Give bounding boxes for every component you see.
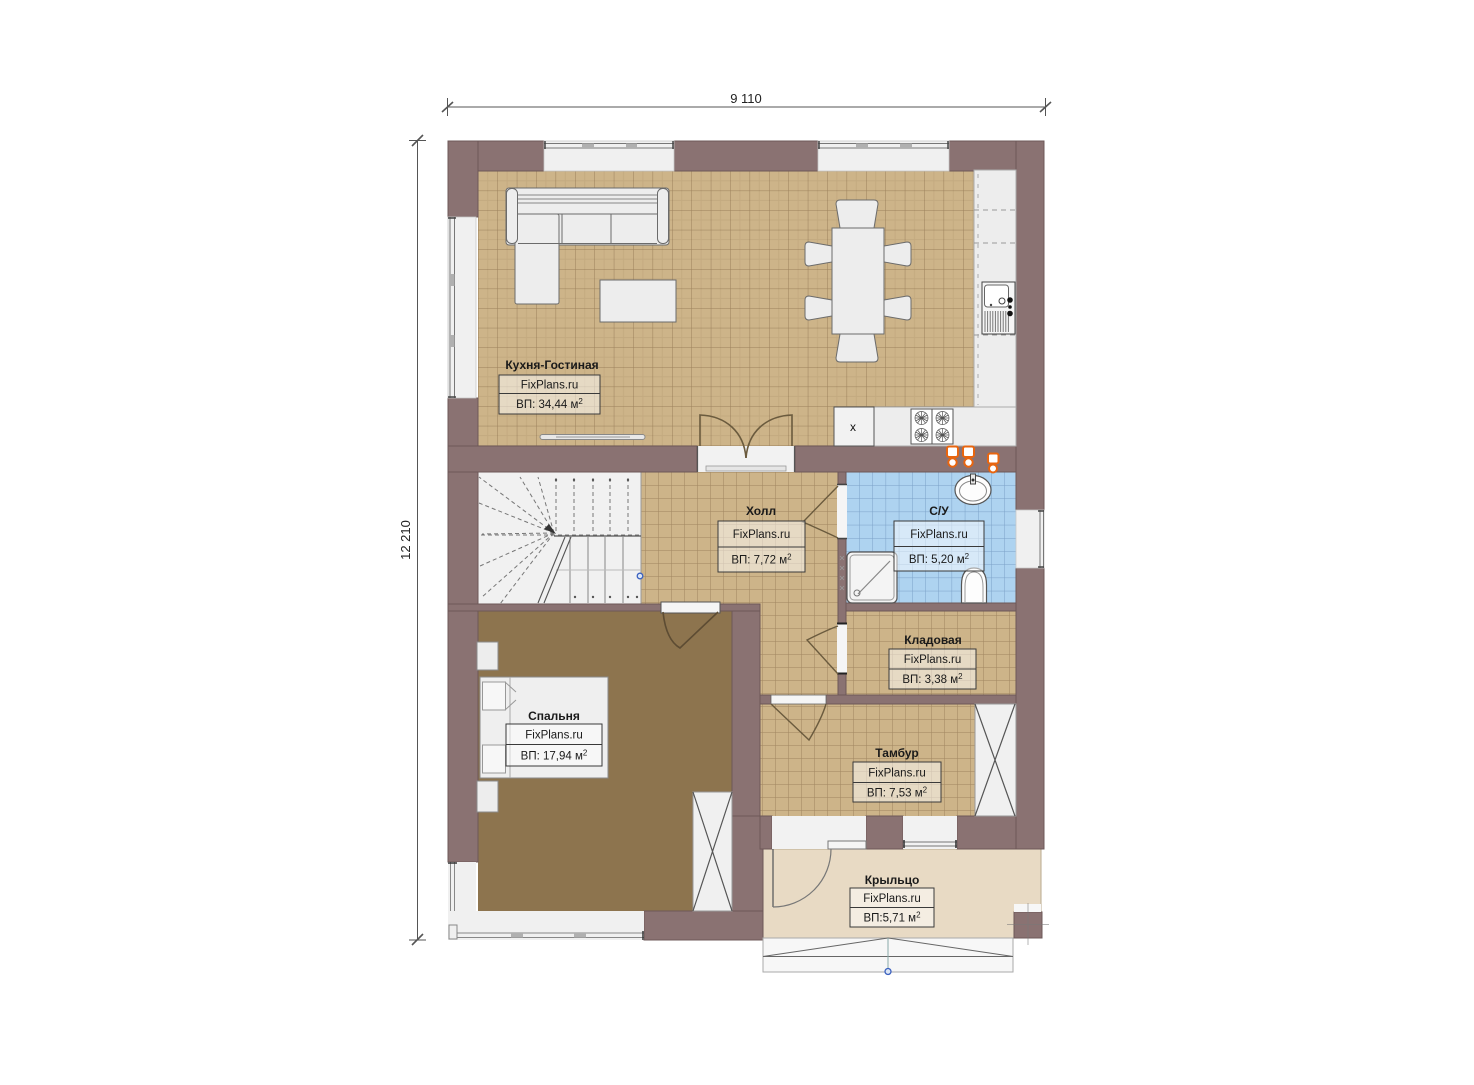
svg-text:ВП:5,71 м2: ВП:5,71 м2 [863, 910, 921, 924]
svg-text:FixPlans.ru: FixPlans.ru [868, 767, 926, 779]
svg-text:FixPlans.ru: FixPlans.ru [904, 654, 962, 666]
svg-text:Кладовая: Кладовая [904, 633, 961, 647]
svg-text:Крыльцо: Крыльцо [865, 873, 920, 887]
svg-text:FixPlans.ru: FixPlans.ru [521, 379, 579, 391]
svg-text:ВП: 5,20 м2: ВП: 5,20 м2 [909, 552, 970, 566]
svg-text:Холл: Холл [746, 504, 776, 518]
svg-text:FixPlans.ru: FixPlans.ru [910, 529, 968, 541]
svg-text:Кухня-Гостиная: Кухня-Гостиная [505, 358, 598, 372]
svg-text:FixPlans.ru: FixPlans.ru [733, 529, 791, 541]
svg-text:ВП: 34,44 м2: ВП: 34,44 м2 [516, 397, 583, 411]
svg-text:ВП: 3,38 м2: ВП: 3,38 м2 [902, 672, 963, 686]
svg-text:9 110: 9 110 [730, 91, 762, 106]
svg-text:ВП: 7,72 м2: ВП: 7,72 м2 [731, 553, 792, 567]
svg-text:x: x [850, 420, 856, 434]
svg-text:FixPlans.ru: FixPlans.ru [525, 729, 583, 741]
svg-text:FixPlans.ru: FixPlans.ru [863, 893, 921, 905]
svg-text:ВП: 7,53 м2: ВП: 7,53 м2 [867, 785, 928, 799]
svg-text:Тамбур: Тамбур [875, 746, 919, 760]
svg-text:Спальня: Спальня [528, 709, 580, 723]
svg-text:С/У: С/У [929, 504, 949, 518]
svg-text:12 210: 12 210 [398, 520, 413, 560]
svg-text:ВП: 17,94 м2: ВП: 17,94 м2 [521, 748, 588, 762]
